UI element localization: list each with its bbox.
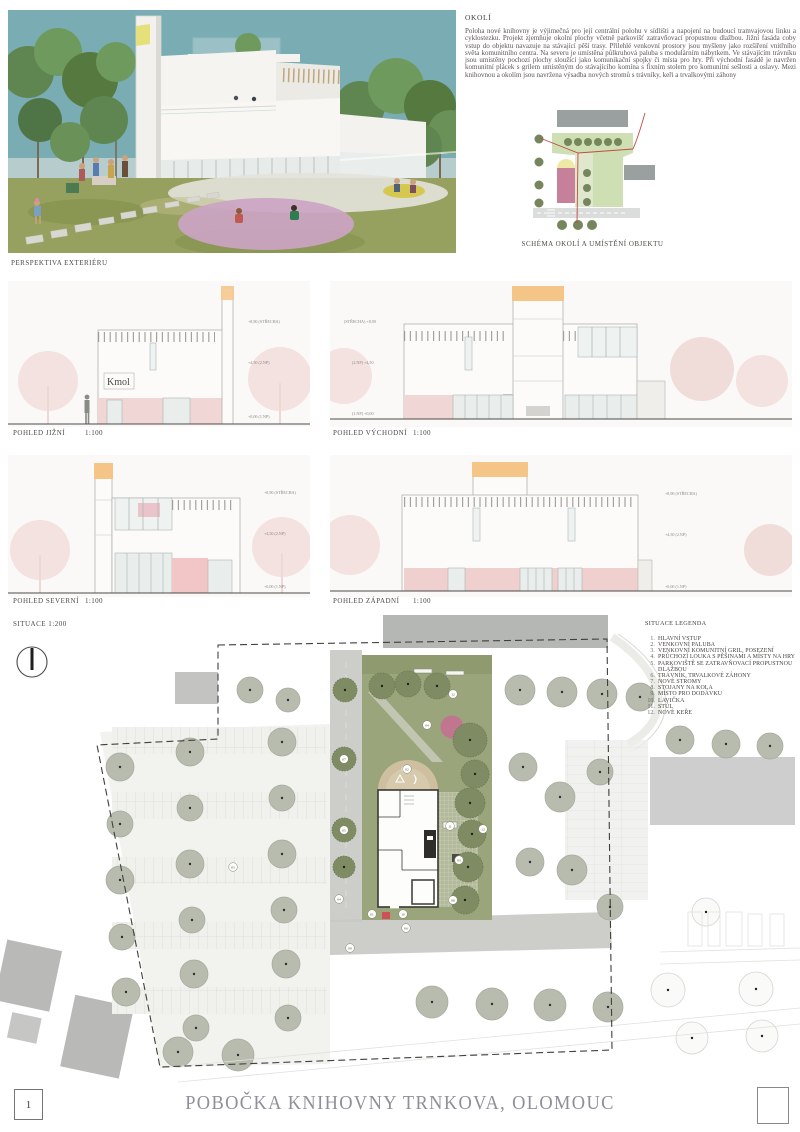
svg-text:09: 09 (348, 946, 352, 950)
elevation-west: +8,90 (STŘECHA) +4,50 (2.NP) +0,00 (1.NP… (330, 455, 792, 597)
svg-text:04: 04 (337, 897, 341, 901)
elevation-west-scale: 1:100 (413, 597, 431, 605)
svg-text:10: 10 (401, 912, 405, 916)
site-schema-diagram (525, 105, 675, 240)
legend-heading: SITUACE LEGENDA (645, 620, 797, 627)
elevation-north: +8,90 (STŘECHA) +4,50 (2.NP) +0,00 (1.NP… (8, 455, 310, 597)
okoli-paragraph: Poloha nové knihovny je výjimečná pro je… (465, 28, 796, 79)
svg-text:02: 02 (405, 767, 409, 771)
svg-text:07: 07 (342, 757, 346, 761)
elevation-north-scale: 1:100 (85, 597, 103, 605)
elevation-west-label: POHLED ZÁPADNÍ (333, 597, 399, 605)
svg-text:11: 11 (448, 824, 452, 828)
svg-text:12: 12 (451, 692, 455, 696)
play-circle (178, 198, 354, 250)
north-arrow-icon (17, 647, 47, 677)
elevation-east: (STŘECHA) +8,90 (2.NP) +4,50 (1.NP) +0,0… (330, 281, 792, 427)
svg-text:01: 01 (370, 912, 374, 916)
svg-text:12: 12 (481, 827, 485, 831)
schema-caption: SCHÉMA OKOLÍ A UMÍSTĚNÍ OBJEKTU (465, 240, 720, 248)
legend-item: 5.PARKOVIŠTĚ SE ZATRAVŇOVACÍ PROPUSTNOU … (645, 661, 797, 673)
svg-text:05: 05 (231, 865, 235, 869)
building-floor-plan (378, 790, 438, 908)
perspective-caption: PERSPEKTIVA EXTERIÉRU (11, 259, 108, 267)
board-title: POBOČKA KNIHOVNY TRNKOVA, OLOMOUC (32, 1092, 768, 1115)
stamp-box (757, 1087, 789, 1124)
legend-list: 1.HLAVNÍ VSTUP 2.VENKOVNÍ PALUBA 3.VENKO… (645, 636, 797, 716)
legend-item: 12.NOVÉ KEŘE (645, 710, 797, 716)
perspective-rendering (8, 10, 456, 253)
svg-text:05: 05 (342, 828, 346, 832)
elevation-south: Kmol +8,90 (STŘECHA) +4,50 (2.NP) +0,00 … (8, 281, 310, 427)
svg-text:03: 03 (457, 858, 461, 862)
svg-text:06: 06 (404, 926, 408, 930)
elevation-north-label: POHLED SEVERNÍ (13, 597, 79, 605)
presentation-board: PERSPEKTIVA EXTERIÉRU OKOLÍ Poloha nové … (0, 0, 800, 1132)
page-number: 1 (26, 1099, 32, 1111)
situace-legend: SITUACE LEGENDA 1.HLAVNÍ VSTUP 2.VENKOVN… (645, 620, 797, 716)
elevation-east-label: POHLED VÝCHODNÍ (333, 429, 407, 437)
elevation-south-label: POHLED JIŽNÍ (13, 429, 65, 437)
elevation-east-scale: 1:100 (413, 429, 431, 437)
kmol-signage: Kmol (107, 377, 130, 388)
elevation-south-scale: 1:100 (85, 429, 103, 437)
okoli-heading: OKOLÍ (465, 13, 491, 22)
outline-trees (651, 898, 778, 1054)
svg-text:04: 04 (425, 723, 429, 727)
svg-text:08: 08 (451, 898, 455, 902)
